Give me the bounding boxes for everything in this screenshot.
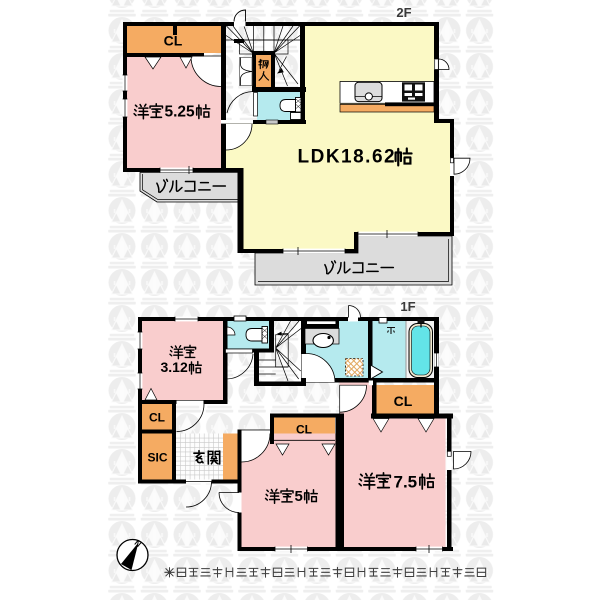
svg-text:5: 5 [295, 488, 303, 505]
svg-text:CL: CL [164, 33, 183, 49]
svg-text:SIC: SIC [147, 451, 167, 465]
svg-text:CL: CL [149, 411, 165, 425]
svg-text:7.5: 7.5 [394, 473, 418, 492]
svg-text:3.12: 3.12 [161, 359, 188, 375]
svg-text:1F: 1F [400, 299, 415, 314]
svg-text:CL: CL [394, 393, 413, 409]
svg-text:2F: 2F [396, 5, 411, 20]
svg-text:LDK18.62: LDK18.62 [298, 147, 397, 168]
svg-text:5.25: 5.25 [165, 104, 196, 121]
svg-text:CL: CL [296, 423, 312, 437]
